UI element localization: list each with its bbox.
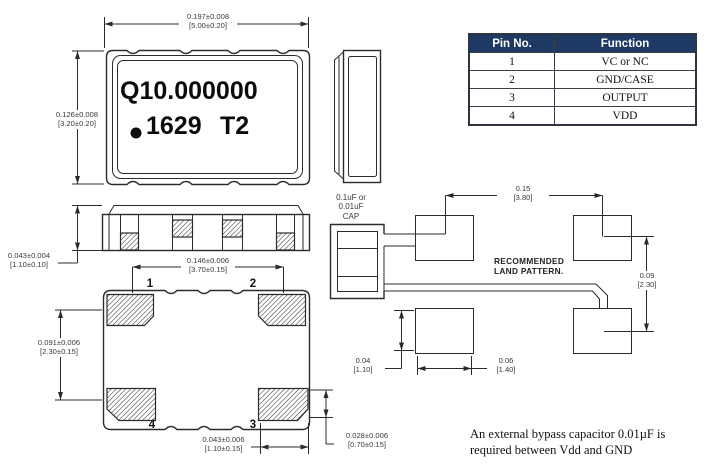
land-pattern-drawing xyxy=(331,216,632,354)
dim-land-pad-height-label: 0.04[1.10] xyxy=(344,356,382,375)
trace-to-bottom-right-pad xyxy=(384,284,608,309)
package-marking-datecode: 1629 xyxy=(146,112,202,141)
dim-pad-height-lines xyxy=(310,390,334,444)
pin-table-header-row: Pin No. Function xyxy=(470,35,695,52)
land-pad-bottom-left xyxy=(416,309,474,354)
pin-table-row: 1 VC or NC xyxy=(470,52,695,70)
pin-table-header-function: Function xyxy=(555,35,695,52)
front-view-lid-seam xyxy=(113,56,303,179)
pin-function-table: Pin No. Function 1 VC or NC 2 GND/CASE 3… xyxy=(468,33,697,126)
pin-table-row: 3 OUTPUT xyxy=(470,88,695,106)
pad-number-4: 4 xyxy=(145,419,159,431)
pad-4-hatched xyxy=(107,389,156,421)
pin-table-row: 2 GND/CASE xyxy=(470,70,695,88)
end-view-body xyxy=(344,51,381,183)
package-marking-code: T2 xyxy=(220,112,249,141)
land-pattern-title: RECOMMENDED LAND PATTERN. xyxy=(494,257,564,277)
dim-row-pitch-label: 0.091±0.006[2.30±0.15] xyxy=(28,338,90,357)
dim-land-width-label: 0.15[3.80] xyxy=(497,184,549,203)
side-view-lid xyxy=(109,206,303,215)
pad-1-hatched xyxy=(107,295,154,326)
end-view-face xyxy=(349,57,377,177)
pad-number-3: 3 xyxy=(246,419,260,431)
dim-land-pad-width-lines xyxy=(418,356,489,375)
land-pad-top-left xyxy=(416,216,474,261)
side-castellation-pad xyxy=(223,220,243,237)
pin-function-cell: OUTPUT xyxy=(555,89,695,106)
pin-number-cell: 3 xyxy=(470,89,555,106)
pin-number-cell: 2 xyxy=(470,71,555,88)
pin-function-cell: VC or NC xyxy=(555,53,695,70)
dim-land-pad-width-label: 0.06[1.40] xyxy=(487,356,525,375)
package-marking-frequency: Q10.000000 xyxy=(120,77,258,106)
side-castellation-pad xyxy=(173,220,193,237)
bypass-capacitor-note: An external bypass capacitor 0.01µF is r… xyxy=(470,427,707,458)
front-view-outer-body xyxy=(107,51,310,185)
front-view-drawing xyxy=(107,51,310,185)
bottom-view-drawing xyxy=(104,291,310,430)
pin1-index-dot xyxy=(131,128,142,139)
dim-land-pad-height-lines xyxy=(385,311,414,369)
pin-number-cell: 4 xyxy=(470,107,555,124)
side-castellation-pad xyxy=(277,233,295,250)
side-view-drawing xyxy=(103,206,310,251)
bypass-capacitor-footprint xyxy=(331,225,385,299)
dim-pad-width-label: 0.043±0.006[1.10±0.15] xyxy=(196,435,251,454)
pin-table-header-pin: Pin No. xyxy=(470,35,555,52)
pad-3-hatched xyxy=(259,389,309,421)
pin-number-cell: 1 xyxy=(470,53,555,70)
pad-number-2: 2 xyxy=(246,278,260,290)
dim-body-width-label: 0.197±0.008[5.00±0.20] xyxy=(179,12,237,31)
dim-land-row-label: 0.09[2.30] xyxy=(628,271,666,290)
pad-number-1: 1 xyxy=(143,278,157,290)
dim-side-height-lines xyxy=(56,206,102,264)
dim-side-height-label: 0.043±0.004[1.10±0.10] xyxy=(0,251,58,270)
bypass-cap-label: 0.1uF or 0.01uF CAP xyxy=(325,193,377,221)
dim-body-height-label: 0.126±0.008[3.20±0.20] xyxy=(50,110,104,129)
pin-table-row: 4 VDD xyxy=(470,106,695,124)
dim-pad-pitch-label: 0.146±0.006[3.70±0.15] xyxy=(181,256,235,275)
side-castellation-pad xyxy=(121,233,139,250)
dim-pad-height-label: 0.028±0.006[0.70±0.15] xyxy=(336,431,398,450)
end-view-drawing xyxy=(335,51,381,183)
datasheet-drawing-page: .ln{stroke:#2b2b2b;stroke-width:1;fill:n… xyxy=(0,0,707,474)
pin-function-cell: VDD xyxy=(555,107,695,124)
pin-function-cell: GND/CASE xyxy=(555,71,695,88)
pad-2-hatched xyxy=(259,295,306,326)
